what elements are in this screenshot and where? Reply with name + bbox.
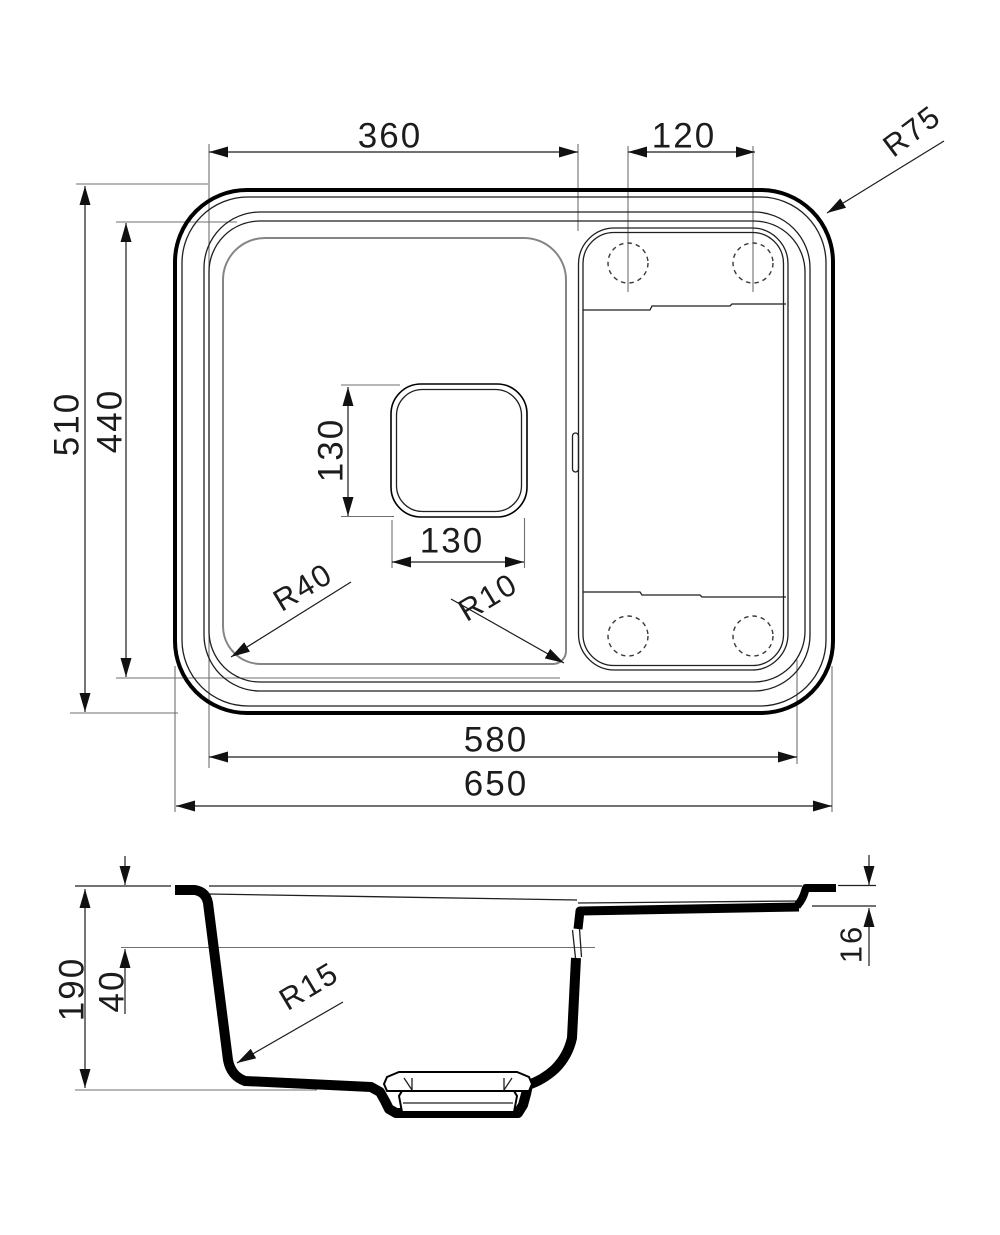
drain-opening-outer — [391, 384, 527, 517]
drainboard-surface-edge — [578, 901, 796, 903]
dim-label-650: 650 — [464, 765, 528, 804]
sink-outer-edge — [175, 190, 833, 713]
sink-technical-drawing-page: 360 120 R75 510 440 130 130 R40 R10 580 … — [0, 0, 1000, 1235]
rim-depression-inner — [209, 221, 805, 682]
radius-label-r75: R75 — [876, 98, 947, 164]
drainboard-outline — [579, 228, 789, 670]
drainboard-inner-outline — [583, 233, 784, 666]
dim-label-580: 580 — [464, 721, 528, 760]
right-rim-profile — [797, 888, 836, 906]
section-view-labels: 190 40 R15 16 — [53, 925, 869, 1021]
drain-flange-body — [399, 1091, 517, 1112]
rim-back-edge-line — [209, 894, 577, 900]
tap-hole — [608, 616, 648, 656]
divider-and-drainboard-profile — [578, 907, 799, 929]
radius-label-r10: R10 — [452, 566, 524, 628]
drain-flange — [384, 1072, 532, 1112]
dim-label-130-horizontal: 130 — [420, 522, 484, 561]
sink-technical-drawing: 360 120 R75 510 440 130 130 R40 R10 580 … — [0, 0, 1000, 1235]
section-reference-lines — [75, 886, 876, 1091]
leader-r75 — [827, 141, 944, 213]
tap-holes — [608, 243, 773, 656]
drain-opening-inner — [397, 390, 522, 512]
dim-label-190: 190 — [53, 957, 92, 1021]
radius-label-r15: R15 — [273, 955, 345, 1017]
dim-label-40: 40 — [93, 970, 132, 1013]
drainboard-fold-line-bottom — [583, 592, 786, 597]
drainboard-fold-line-top — [583, 304, 786, 310]
dim-label-16: 16 — [834, 925, 869, 963]
dim-label-120: 120 — [652, 117, 716, 156]
overflow-notch-edge — [573, 930, 576, 958]
rim-depression-outer — [204, 212, 810, 691]
overflow-slot — [573, 433, 579, 472]
dim-label-360: 360 — [358, 117, 422, 156]
section-view: 190 40 R15 16 — [53, 855, 877, 1113]
overflow-notch-edge — [580, 929, 582, 957]
dim-label-510: 510 — [48, 392, 87, 456]
dim-label-130-vertical: 130 — [312, 418, 351, 482]
tap-hole — [733, 616, 773, 656]
radius-label-r40: R40 — [267, 556, 339, 618]
dim-label-440: 440 — [91, 389, 130, 453]
top-view: 360 120 R75 510 440 130 130 R40 R10 580 … — [48, 98, 948, 812]
